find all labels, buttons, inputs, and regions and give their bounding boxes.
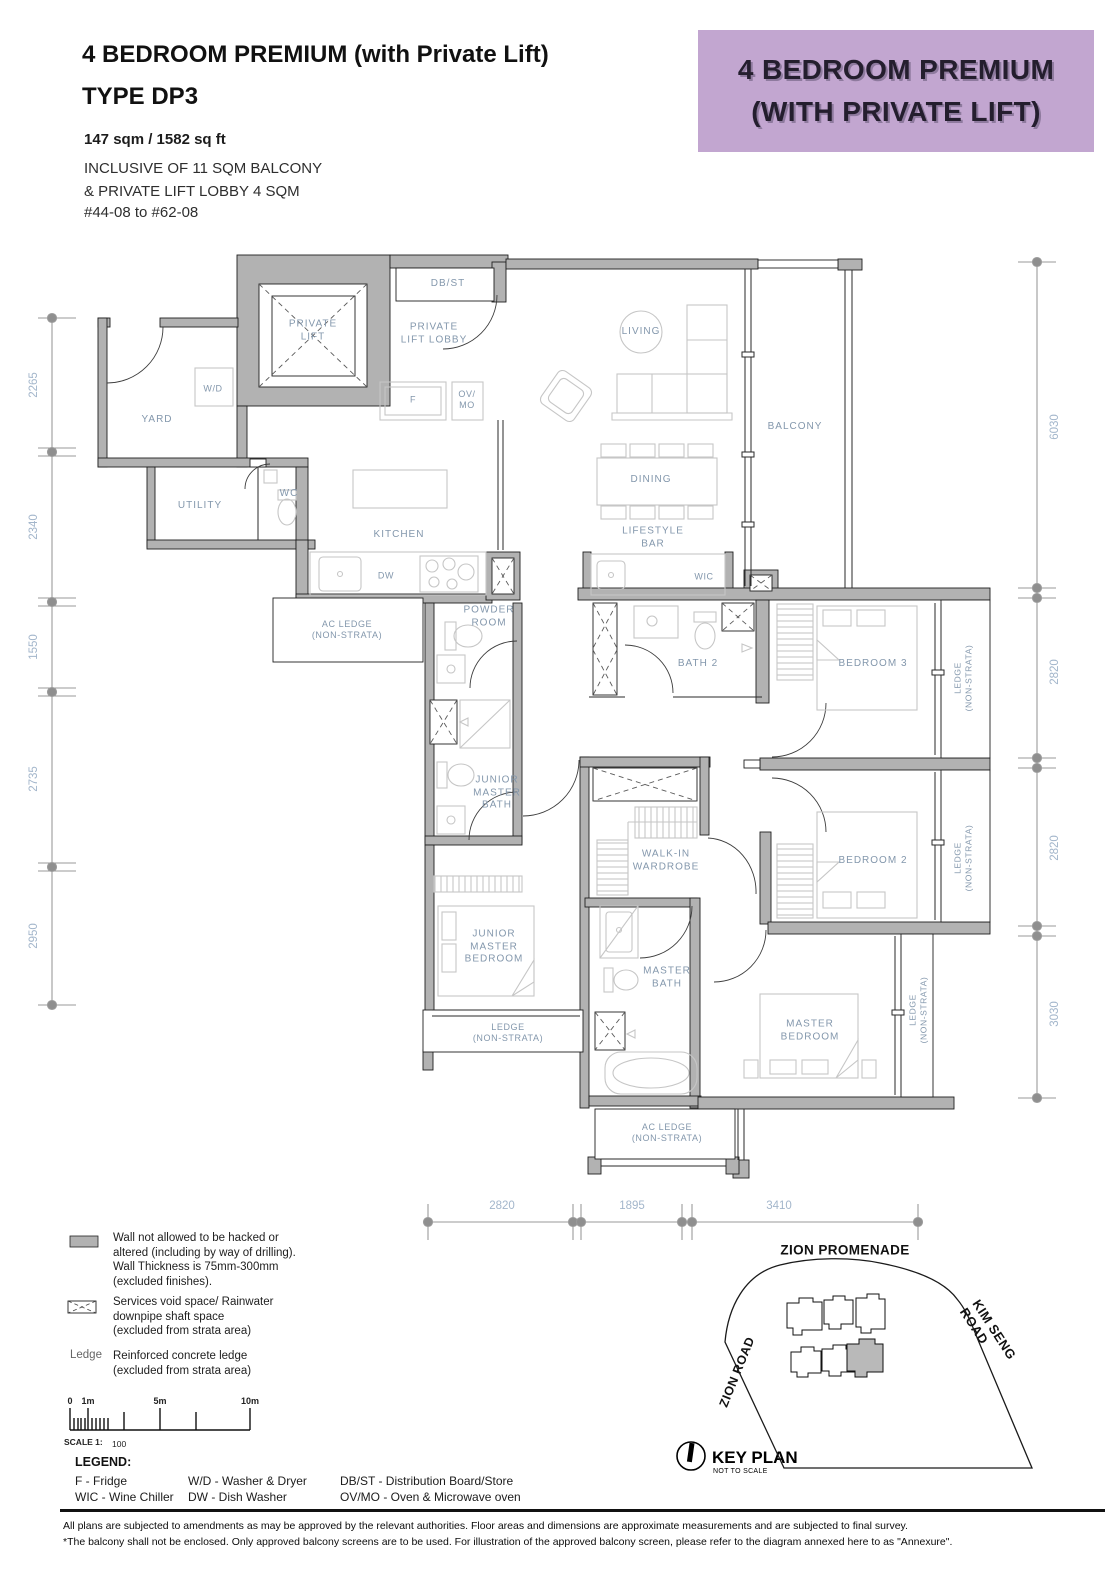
label-ac-ledge-bottom: AC LEDGE (NON-STRATA) xyxy=(632,1122,702,1144)
floor-plan-drawing xyxy=(0,0,1112,1575)
label-ledge-junior: LEDGE (NON-STRATA) xyxy=(473,1022,543,1044)
dim-right-2820b: 2820 xyxy=(1049,835,1061,861)
dim-left-2265: 2265 xyxy=(28,372,40,398)
dim-left-1550: 1550 xyxy=(28,634,40,660)
dim-bottom-1895: 1895 xyxy=(619,1200,645,1212)
room-label-living: LIVING xyxy=(622,326,661,339)
fixture-label-fridge: F xyxy=(410,395,416,406)
dim-right-6030: 6030 xyxy=(1049,414,1061,440)
room-label-lifestyle-bar: LIFESTYLE BAR xyxy=(622,526,684,551)
room-label-dbst: DB/ST xyxy=(431,278,465,291)
room-label-junior-bedroom: JUNIOR MASTER BEDROOM xyxy=(465,928,524,966)
room-label-kitchen: KITCHEN xyxy=(374,529,425,542)
room-label-balcony: BALCONY xyxy=(768,421,823,434)
fixture-label-dw: DW xyxy=(378,571,394,582)
floor-plan-sheet: 4 BEDROOM PREMIUM (with Private Lift) TY… xyxy=(0,0,1112,1575)
room-label-walkin-wardrobe: WALK-IN WARDROBE xyxy=(633,849,700,874)
dim-left-2735: 2735 xyxy=(28,766,40,792)
label-ac-ledge-top: AC LEDGE (NON-STRATA) xyxy=(312,619,382,641)
room-label-bath2: BATH 2 xyxy=(678,658,718,671)
room-label-utility: UTILITY xyxy=(178,500,222,513)
fixture-label-wd: W/D xyxy=(203,384,222,395)
room-label-lift-lobby: PRIVATE LIFT LOBBY xyxy=(401,322,468,347)
key-plan-map xyxy=(677,1259,1032,1470)
label-ledge-bedroom2: LEDGE (NON-STRATA) xyxy=(953,825,974,892)
dim-right-3030: 3030 xyxy=(1049,1001,1061,1027)
dim-bottom-2820: 2820 xyxy=(489,1200,515,1212)
room-label-private-lift: PRIVATE LIFT xyxy=(289,319,337,344)
fixture-label-ovmo: OV/ MO xyxy=(458,389,475,411)
dim-right-2820a: 2820 xyxy=(1049,659,1061,685)
room-label-junior-bath: JUNIOR MASTER BATH xyxy=(473,774,521,812)
room-label-master-bedroom: MASTER BEDROOM xyxy=(781,1019,840,1044)
label-ledge-bedroom3: LEDGE (NON-STRATA) xyxy=(953,645,974,712)
legend-symbols xyxy=(68,1236,98,1313)
room-label-dining: DINING xyxy=(631,474,672,487)
room-label-yard: YARD xyxy=(141,414,172,427)
label-ledge-master: LEDGE (NON-STRATA) xyxy=(908,977,929,1044)
room-label-bedroom3: BEDROOM 3 xyxy=(838,658,907,671)
room-label-wc: WC xyxy=(280,488,299,501)
dim-bottom-3410: 3410 xyxy=(766,1200,792,1212)
room-label-bedroom2: BEDROOM 2 xyxy=(838,855,907,868)
room-label-master-bath: MASTER BATH xyxy=(643,966,691,991)
fixture-label-wic: WIC xyxy=(694,572,713,583)
scale-bar xyxy=(70,1408,250,1430)
dim-left-2340: 2340 xyxy=(28,514,40,540)
dim-left-2950: 2950 xyxy=(28,923,40,949)
room-label-powder-room: POWDER ROOM xyxy=(464,605,515,630)
